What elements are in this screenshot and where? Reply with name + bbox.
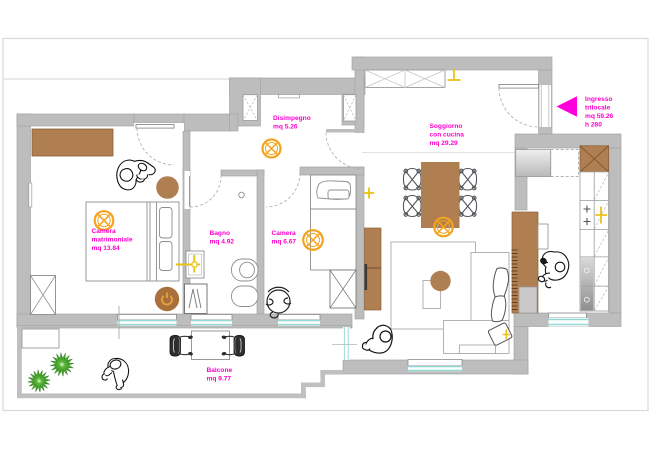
- svg-text:mq 59.26: mq 59.26: [585, 113, 614, 120]
- svg-text:mq 29.29: mq 29.29: [430, 140, 459, 147]
- svg-text:con cucina: con cucina: [430, 132, 465, 139]
- svg-text:Soggiorno: Soggiorno: [430, 123, 463, 130]
- svg-text:Disimpegno: Disimpegno: [273, 115, 311, 122]
- svg-text:mq 9.77: mq 9.77: [207, 376, 232, 383]
- svg-text:h 280: h 280: [585, 122, 602, 129]
- svg-text:Camera: Camera: [272, 230, 297, 237]
- svg-text:Camera: Camera: [92, 228, 117, 235]
- svg-text:mq 5.26: mq 5.26: [273, 124, 298, 131]
- svg-text:mq 13.84: mq 13.84: [92, 245, 121, 252]
- svg-text:Ingresso: Ingresso: [585, 96, 612, 103]
- svg-text:mq 4.92: mq 4.92: [210, 239, 235, 246]
- svg-text:matrimoniale: matrimoniale: [92, 237, 133, 244]
- svg-text:trilocale: trilocale: [585, 105, 611, 112]
- svg-text:mq 6.67: mq 6.67: [272, 239, 297, 246]
- svg-text:Bagno: Bagno: [210, 230, 231, 237]
- svg-text:Balcone: Balcone: [207, 367, 233, 374]
